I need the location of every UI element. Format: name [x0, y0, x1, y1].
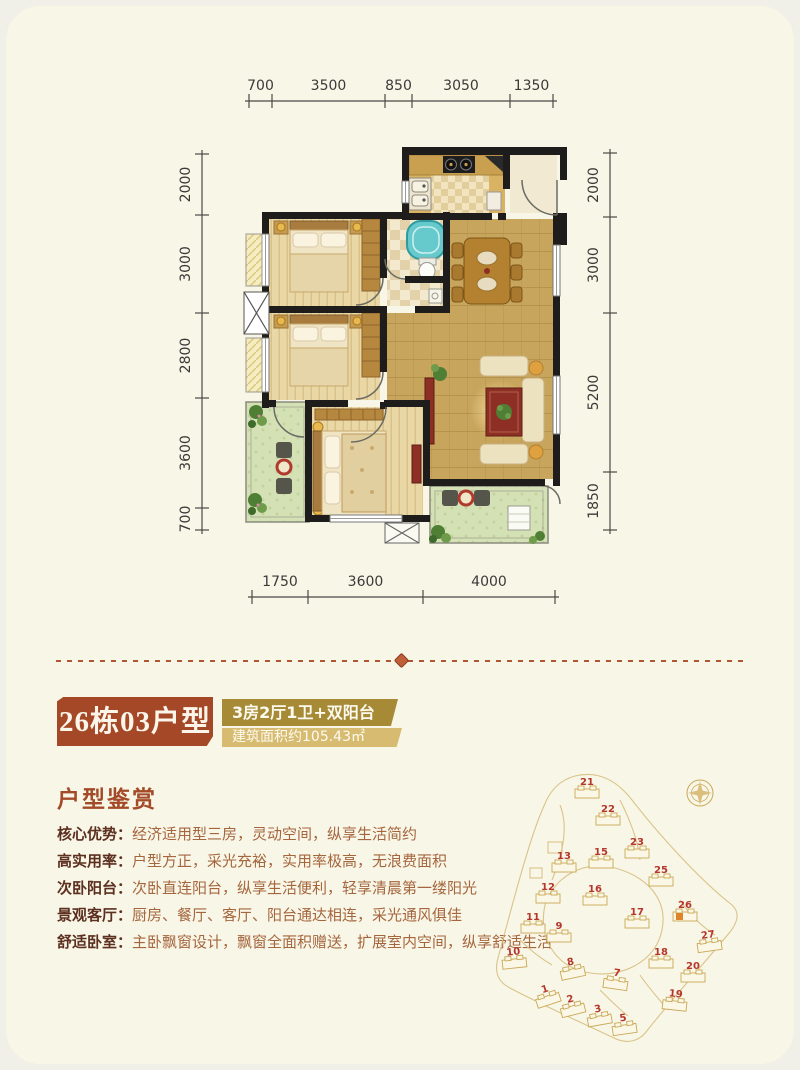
site-building-10: 10: [501, 946, 527, 969]
balcony-chair: [276, 478, 292, 494]
dim-top: 700350085030501350: [245, 78, 557, 108]
wardrobe: [315, 409, 383, 420]
dim-right: 2000300052001850: [586, 149, 617, 534]
feature-label: 核心优势：: [57, 825, 132, 843]
dimension-label: 1350: [514, 78, 550, 94]
site-building-23: 23: [625, 837, 649, 858]
site-building-21: 21: [575, 777, 599, 798]
site-map: 212223151325121626171192710188207191235: [480, 748, 780, 1053]
building-number: 12: [541, 882, 555, 893]
fridge: [487, 192, 501, 210]
dimension-label: 3000: [178, 246, 194, 282]
entry-floor: [510, 155, 557, 213]
site-building-25: 25: [649, 865, 673, 886]
ornament-divider: [56, 660, 746, 662]
site-building-11: 11: [521, 912, 545, 933]
bedroom1-furniture: [274, 219, 380, 292]
site-building-18: 18: [649, 947, 673, 968]
site-building-17: 17: [625, 907, 649, 928]
feature-row: 核心优势：经济适用型三房，灵动空间，纵享生活简约: [57, 821, 497, 848]
feature-row: 景观客厅：厨房、餐厅、客厅、阳台通达相连，采光通风俱佳: [57, 902, 497, 929]
feature-label: 景观客厅：: [57, 906, 132, 924]
building-number: 20: [686, 961, 700, 972]
building-number: 27: [700, 929, 715, 942]
balcony-table: [459, 491, 473, 505]
feature-label: 次卧阳台：: [57, 879, 132, 897]
dimension-label: 3600: [178, 435, 194, 471]
building-number: 13: [557, 851, 571, 862]
bedroom2-furniture: [274, 313, 380, 386]
dimension-label: 850: [385, 78, 412, 94]
basin: [429, 289, 442, 303]
building-number: 22: [601, 804, 615, 815]
dim-bottom: 175036004000: [248, 574, 559, 604]
compass-rose: [687, 780, 713, 806]
dimension-label: 3050: [443, 78, 479, 94]
dimension-label: 2000: [586, 167, 602, 203]
dresser: [412, 445, 421, 483]
balcony-chair: [442, 490, 458, 506]
wardrobe: [362, 313, 380, 377]
building-number: 8: [566, 957, 575, 969]
dimension-label: 700: [247, 78, 274, 94]
highlighted-building-marker: [676, 913, 683, 920]
site-building-5: 5: [610, 1011, 637, 1035]
building-number: 15: [594, 847, 608, 858]
feature-row: 高实用率：户型方正，采光充裕，实用率极高，无浪费面积: [57, 848, 497, 875]
feature-list: 核心优势：经济适用型三房，灵动空间，纵享生活简约高实用率：户型方正，采光充裕，实…: [57, 821, 497, 956]
building-number: 26: [678, 900, 692, 911]
site-building-8: 8: [558, 955, 586, 981]
area-badge: 建筑面积约105.43㎡: [222, 728, 402, 747]
site-building-9: 9: [547, 921, 571, 942]
balcony-table: [277, 460, 291, 474]
building-number: 11: [526, 912, 540, 923]
site-building-20: 20: [681, 961, 705, 982]
bay-window: [246, 234, 262, 286]
building-number: 23: [630, 837, 644, 848]
bay-window: [246, 338, 262, 392]
site-building-27: 27: [695, 928, 722, 952]
site-building-19: 19: [662, 988, 688, 1011]
bench: [508, 506, 530, 530]
dimension-label: 1750: [262, 574, 298, 590]
feature-text: 次卧直连阳台，纵享生活便利，轻享清晨第一缕阳光: [132, 879, 477, 897]
dimension-label: 2000: [178, 167, 194, 203]
dimension-label: 3500: [311, 78, 347, 94]
site-building-22: 22: [596, 804, 620, 825]
feature-label: 高实用率：: [57, 852, 132, 870]
site-building-2: 2: [557, 991, 585, 1017]
building-number: 19: [668, 988, 683, 1000]
site-building-26: 26: [673, 900, 697, 921]
feature-text: 经济适用型三房，灵动空间，纵享生活简约: [132, 825, 417, 843]
building-number: 16: [588, 884, 602, 895]
building-number: 17: [630, 907, 644, 918]
site-building-16: 16: [583, 884, 607, 905]
kitchen-floor-center: [431, 175, 489, 213]
sofa: [480, 444, 528, 464]
dimension-label: 4000: [471, 574, 507, 590]
dimension-label: 5200: [586, 375, 602, 411]
site-building-15: 15: [589, 847, 613, 868]
dimension-label: 700: [178, 506, 194, 533]
feature-label: 舒适卧室：: [57, 933, 132, 951]
site-building-3: 3: [585, 1002, 612, 1027]
building-number: 21: [580, 777, 594, 788]
dimension-label: 1850: [586, 483, 602, 519]
site-building-13: 13: [552, 851, 576, 872]
balcony-chair: [474, 490, 490, 506]
building-number: 10: [506, 946, 521, 958]
dimension-label: 3600: [348, 574, 384, 590]
floorplan-sheet: { "title_block": { "unit_name": "26栋03户型…: [0, 0, 800, 1070]
layout-badge: 3房2厅1卫+双阳台: [222, 699, 398, 726]
sofa: [480, 356, 528, 376]
site-buildings: 212223151325121626171192710188207191235: [501, 777, 722, 1036]
building-number: 18: [654, 947, 668, 958]
building-number: 9: [556, 921, 563, 932]
building-number: 2: [566, 994, 575, 1006]
dim-left: 2000300028003600700: [178, 150, 209, 534]
section-heading: 户型鉴赏: [57, 780, 157, 814]
site-building-1: 1: [532, 981, 561, 1008]
floorplan-drawing: 7003500850305013501750360040002000300028…: [0, 0, 800, 640]
feature-row: 次卧阳台：次卧直连阳台，纵享生活便利，轻享清晨第一缕阳光: [57, 875, 497, 902]
feature-text: 厨房、餐厅、客厅、阳台通达相连，采光通风俱佳: [132, 906, 462, 924]
dimension-label: 3000: [586, 247, 602, 283]
sofa: [522, 378, 544, 442]
feature-row: 舒适卧室：主卧飘窗设计，飘窗全面积赠送，扩展室内空间，纵享舒适生活: [57, 929, 497, 956]
dining-furniture: [452, 238, 522, 304]
balcony-chair: [276, 442, 292, 458]
dimension-label: 2800: [178, 338, 194, 374]
feature-text: 户型方正，采光充裕，实用率极高，无浪费面积: [132, 852, 447, 870]
building-number: 3: [593, 1004, 602, 1016]
unit-name-badge: 26栋03户型: [57, 697, 213, 746]
building-number: 25: [654, 865, 668, 876]
